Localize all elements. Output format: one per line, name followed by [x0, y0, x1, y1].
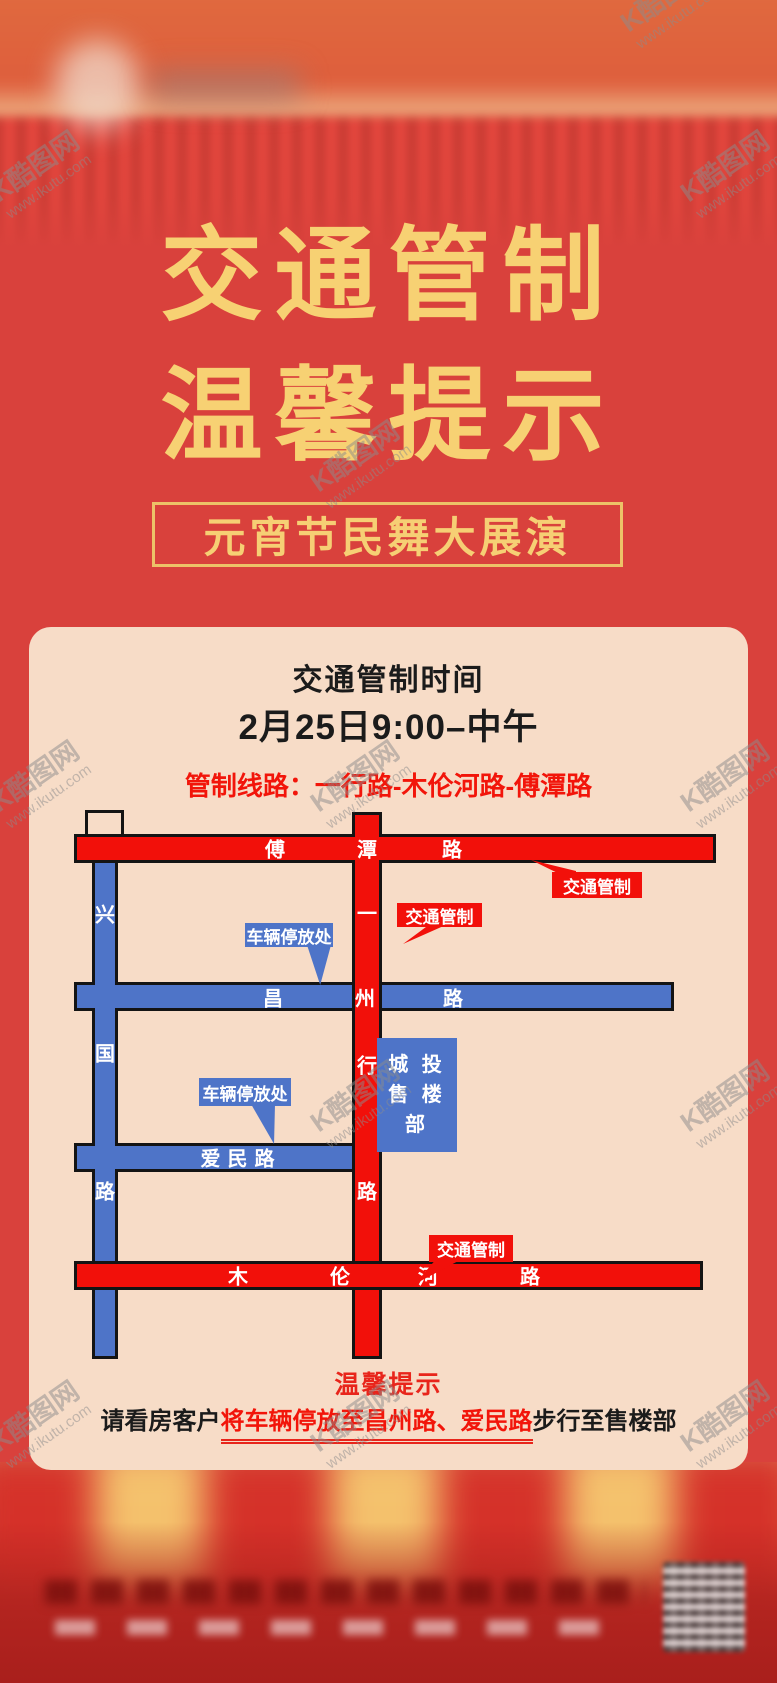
notice-suffix: 步行至售楼部	[533, 1408, 677, 1435]
traffic-notice-poster: 交通管制 温馨提示 元宵节民舞大展演 交通管制时间 2月25日9:00–中午 管…	[0, 0, 777, 1683]
road-label-aimin: 爱民路	[201, 1143, 282, 1172]
road-label-futan-char: 傅	[265, 834, 285, 863]
road-label-mulunhe-char: 伦	[330, 1261, 350, 1290]
sales-office-line1: 城 投	[388, 1050, 446, 1080]
poster-title-line2: 温馨提示	[0, 346, 777, 486]
info-panel: 交通管制时间 2月25日9:00–中午 管制线路：一行路-木伦河路-傅潭路 城	[29, 627, 748, 1470]
road-label-mulunhe-char: 木	[228, 1261, 248, 1290]
qr-code-blurred	[663, 1562, 745, 1652]
road-label-xingguo-char: 国	[95, 1038, 115, 1067]
road-label-futan-char: 潭	[357, 834, 377, 863]
parking-callout-upper-pointer	[307, 945, 331, 985]
road-label-yixing-char: 行	[357, 1050, 377, 1079]
blurred-red-title-text	[45, 1580, 645, 1604]
notice-line: 请看房客户将车辆停放至昌州路、爱民路步行至售楼部	[29, 1401, 748, 1436]
traffic-control-callout-middle: 交通管制	[397, 903, 482, 927]
road-mulunhe	[74, 1261, 703, 1290]
control-route-line: 管制线路：一行路-木伦河路-傅潭路	[29, 766, 748, 803]
poster-title-line1: 交通管制	[0, 206, 777, 346]
parking-callout-upper: 车辆停放处	[245, 923, 333, 947]
traffic-control-callout-bottom: 交通管制	[429, 1235, 513, 1262]
junction-xingguo-changzhou	[95, 982, 115, 1011]
parking-callout-lower: 车辆停放处	[199, 1078, 291, 1106]
road-futan	[74, 834, 716, 863]
road-stub-top-left	[85, 810, 124, 837]
junction-xingguo-aimin	[95, 1143, 115, 1172]
statue-highlight-blur	[55, 40, 140, 130]
event-banner: 元宵节民舞大展演	[152, 502, 623, 567]
sales-office-line2: 售 楼 部	[377, 1080, 457, 1140]
control-time-value: 2月25日9:00–中午	[29, 699, 748, 750]
road-label-yixing-char: 路	[357, 1176, 377, 1205]
notice-highlight: 将车辆停放至昌州路、爱民路	[221, 1408, 533, 1444]
road-label-xingguo-char: 兴	[95, 899, 115, 928]
blurred-footer-text	[55, 1620, 625, 1635]
traffic-control-callout-top: 交通管制	[552, 872, 642, 898]
road-label-yixing-char: 一	[357, 898, 377, 927]
sales-office-box: 城 投 售 楼 部	[377, 1038, 457, 1152]
road-label-changzhou-char: 路	[443, 983, 463, 1012]
bottom-blurred-lantern-scene	[0, 1462, 777, 1683]
parking-callout-lower-pointer	[251, 1104, 275, 1144]
sign-plaque-blur	[150, 70, 300, 102]
road-label-futan-char: 路	[442, 834, 462, 863]
road-label-changzhou-char: 昌	[263, 983, 283, 1012]
road-label-xingguo-char: 路	[95, 1176, 115, 1205]
notice-heading: 温馨提示	[29, 1365, 748, 1401]
event-banner-text: 元宵节民舞大展演	[203, 504, 571, 565]
notice-prefix: 请看房客户	[101, 1408, 221, 1435]
control-time-heading: 交通管制时间	[29, 655, 748, 699]
road-label-mulunhe-char: 路	[520, 1261, 540, 1290]
poster-title: 交通管制 温馨提示	[0, 206, 777, 486]
road-label-changzhou-char: 州	[355, 983, 375, 1012]
